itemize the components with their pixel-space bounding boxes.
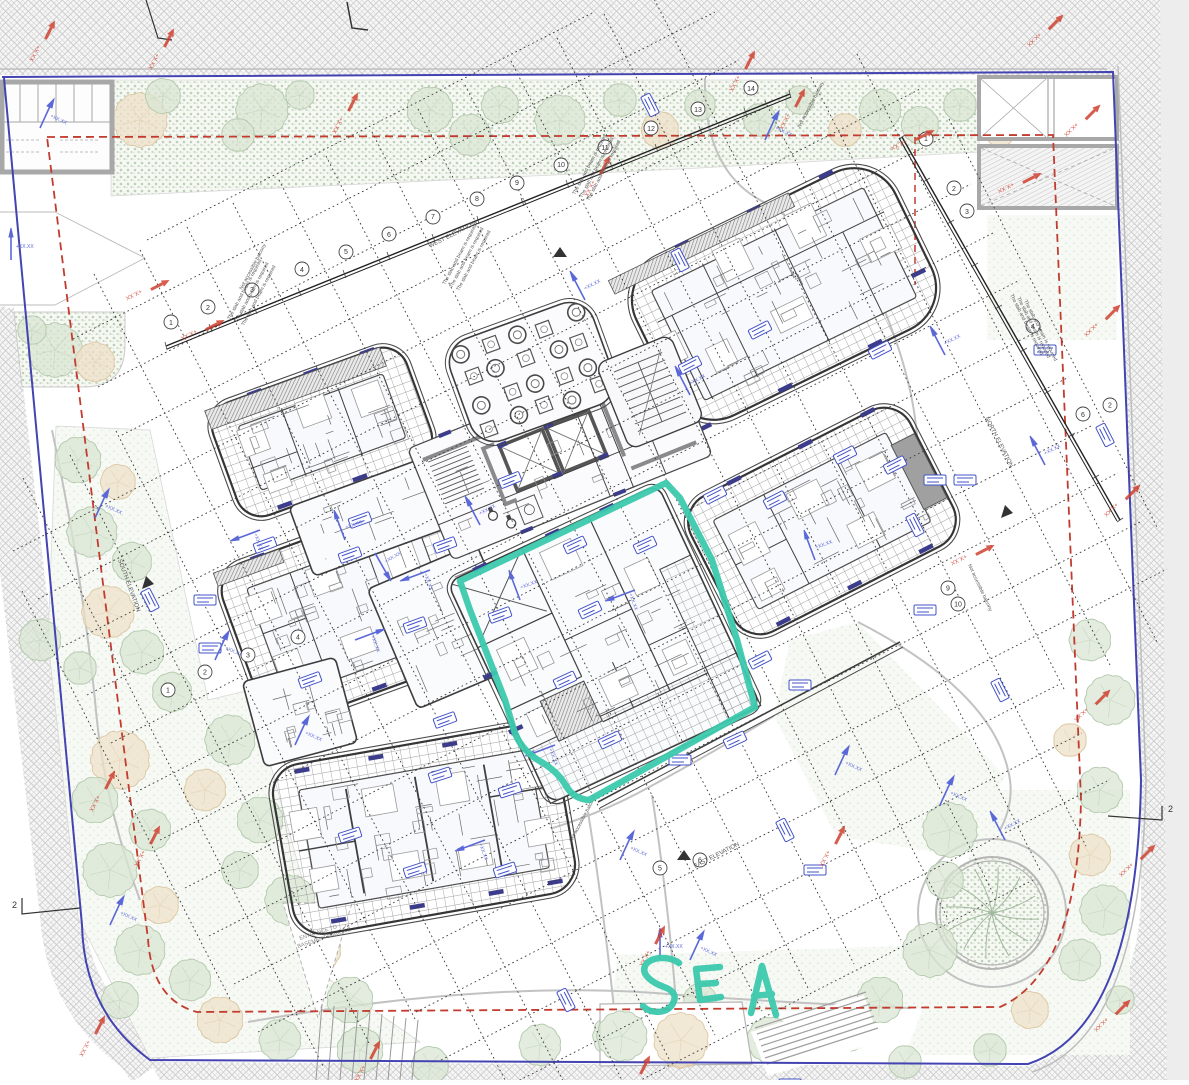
svg-text:2: 2: [206, 305, 210, 312]
svg-text:10: 10: [557, 162, 565, 169]
svg-text:5: 5: [658, 866, 662, 873]
svg-text:3: 3: [965, 209, 969, 216]
svg-text:12: 12: [647, 126, 655, 133]
svg-text:2: 2: [203, 670, 207, 677]
svg-text:6: 6: [1081, 412, 1085, 419]
svg-text:9: 9: [946, 586, 950, 593]
svg-text:10: 10: [954, 602, 962, 609]
svg-text:2: 2: [12, 900, 17, 910]
svg-text:+XX.XX: +XX.XX: [665, 944, 683, 950]
svg-text:3: 3: [246, 653, 250, 660]
svg-text:1: 1: [169, 320, 173, 327]
svg-text:13: 13: [694, 107, 702, 114]
svg-text:6: 6: [387, 232, 391, 239]
svg-text:2: 2: [1168, 804, 1173, 814]
svg-text:7: 7: [431, 214, 435, 221]
svg-text:8: 8: [475, 196, 479, 203]
svg-text:2: 2: [952, 186, 956, 193]
svg-text:14: 14: [747, 86, 755, 93]
svg-text:9: 9: [515, 180, 519, 187]
svg-text:4: 4: [296, 635, 300, 642]
svg-text:4: 4: [300, 267, 304, 274]
svg-text:2: 2: [1108, 403, 1112, 410]
svg-text:+XX.XX: +XX.XX: [16, 244, 34, 250]
svg-text:1: 1: [166, 688, 170, 695]
svg-text:5: 5: [344, 249, 348, 256]
svg-text:1: 1: [924, 136, 928, 143]
